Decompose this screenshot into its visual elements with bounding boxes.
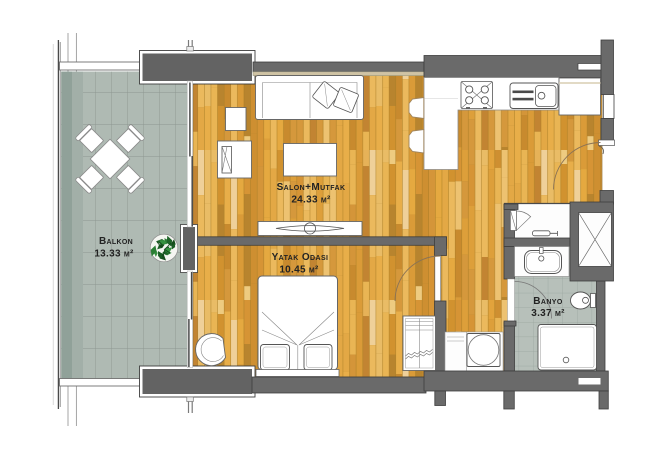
svg-text:3.37 m²: 3.37 m²: [531, 308, 565, 319]
svg-text:Salon+Mutfak: Salon+Mutfak: [277, 182, 346, 193]
svg-text:Balkon: Balkon: [99, 236, 133, 247]
svg-text:Yatak Odası: Yatak Odası: [272, 252, 329, 263]
svg-text:10.45 m²: 10.45 m²: [279, 265, 319, 276]
svg-text:24.33 m²: 24.33 m²: [291, 195, 331, 206]
svg-text:Banyo: Banyo: [533, 296, 563, 307]
svg-text:13.33 m²: 13.33 m²: [94, 249, 134, 260]
